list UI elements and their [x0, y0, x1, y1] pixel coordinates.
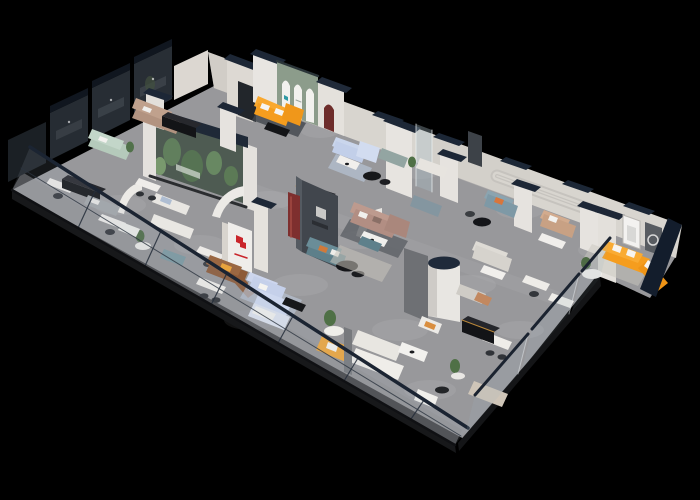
cylinder-shade — [428, 262, 437, 317]
round-side-table — [324, 326, 344, 336]
black-round-table — [380, 179, 391, 185]
potted-plant — [450, 359, 460, 373]
black-round-table — [473, 218, 491, 227]
dining-chair — [136, 192, 144, 197]
dark-side-table — [435, 387, 449, 394]
partition-wall — [254, 201, 268, 273]
arch-display — [306, 88, 314, 123]
desk-chair — [465, 211, 475, 217]
panel-lamp-dot — [152, 78, 154, 80]
table-decor — [410, 351, 415, 354]
cylinder-top-navy — [428, 257, 460, 270]
potted-plant — [126, 142, 134, 153]
dining-chair — [148, 196, 156, 201]
potted-plant — [324, 310, 336, 326]
potted-plant — [408, 157, 416, 168]
red-banner-panel — [288, 192, 300, 240]
black-round-table — [363, 172, 381, 181]
gray-partition — [404, 248, 428, 322]
table-decor — [345, 163, 349, 165]
showroom-floorplan-render — [0, 0, 700, 500]
desk-chair — [529, 291, 539, 297]
round-side-table — [451, 373, 465, 380]
door-glass — [416, 124, 432, 192]
maroon-niche — [324, 104, 334, 132]
dining-chair — [486, 350, 495, 356]
panel-lamp-dot — [110, 99, 112, 101]
panel-lamp-dot — [68, 121, 70, 123]
column-white — [440, 153, 458, 203]
mirror-wall — [468, 131, 482, 167]
logo-wall-pillar — [222, 222, 228, 264]
poster-inner — [627, 225, 636, 243]
floorplan-svg — [0, 0, 700, 500]
